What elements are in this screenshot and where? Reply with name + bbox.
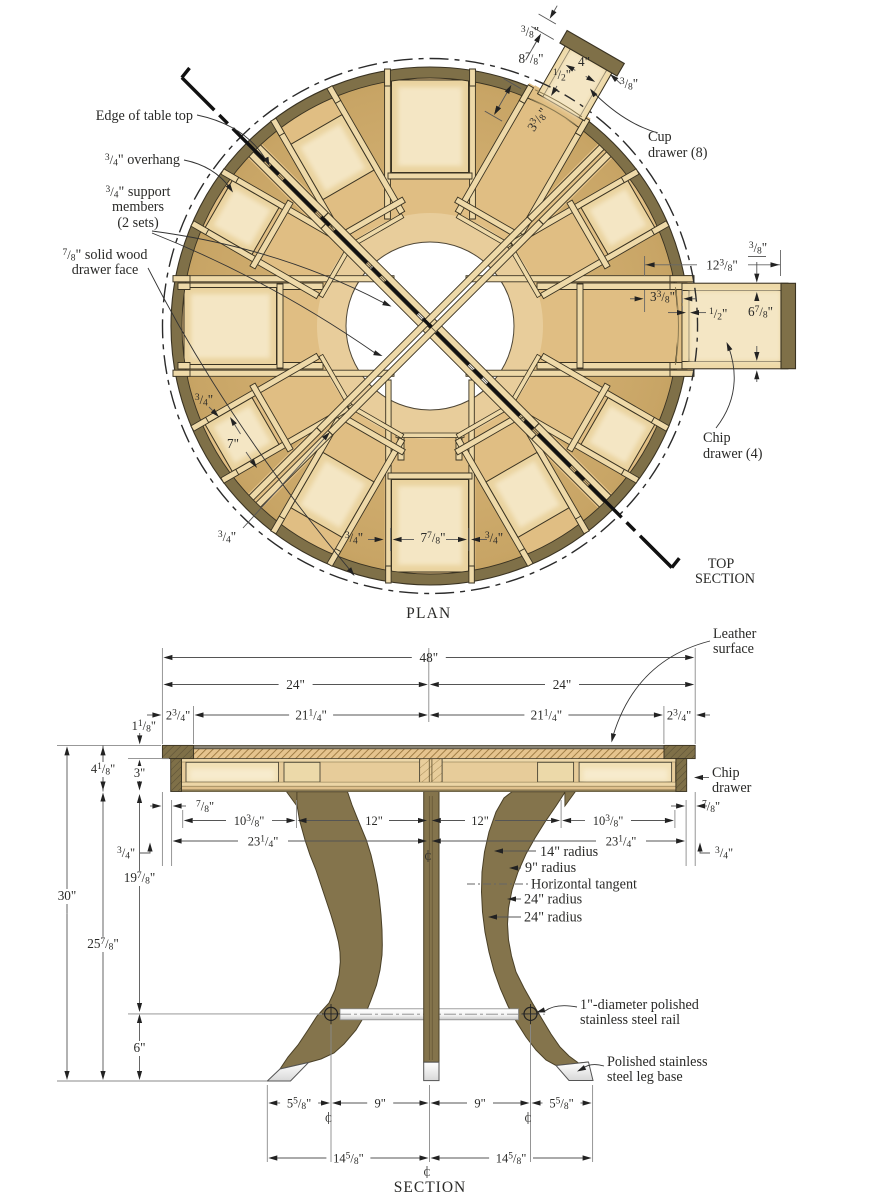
svg-text:48": 48" [420,650,439,665]
svg-text:Leather: Leather [713,626,757,642]
svg-text:9" radius: 9" radius [525,860,577,876]
svg-text:30": 30" [58,888,77,903]
svg-text:41/8": 41/8" [91,762,115,778]
svg-text:surface: surface [713,641,754,657]
svg-text:24": 24" [286,677,305,692]
svg-text:drawer face: drawer face [72,262,139,278]
svg-text:24" radius: 24" radius [524,892,583,908]
svg-text:55/8": 55/8" [287,1096,311,1112]
svg-text:drawer (4): drawer (4) [703,446,763,462]
svg-text:23/4": 23/4" [166,708,190,724]
svg-text:stainless steel rail: stainless steel rail [580,1012,680,1028]
svg-text:SECTION: SECTION [394,1179,466,1196]
svg-text:11/8": 11/8" [132,719,156,735]
svg-text:24" radius: 24" radius [524,910,583,926]
svg-text:Polished stainless: Polished stainless [607,1054,708,1070]
svg-text:77/8": 77/8" [421,530,446,547]
svg-text:3": 3" [134,766,145,780]
svg-text:9": 9" [474,1097,485,1111]
svg-text:6": 6" [134,1040,146,1055]
svg-text:12": 12" [365,814,383,828]
svg-text:7": 7" [227,436,239,451]
svg-text:drawer (8): drawer (8) [648,145,708,161]
svg-text:23/4": 23/4" [667,708,691,724]
svg-text:12": 12" [471,814,489,828]
svg-text:67/8": 67/8" [748,304,773,321]
svg-text:members: members [112,199,164,215]
svg-text:9": 9" [375,1097,386,1111]
svg-text:24": 24" [553,677,572,692]
svg-text:55/8": 55/8" [549,1096,573,1112]
svg-text:TOP: TOP [708,556,735,572]
svg-text:steel leg base: steel leg base [607,1069,683,1085]
svg-text:SECTION: SECTION [695,571,755,587]
svg-text:Chip: Chip [712,765,740,781]
svg-text:1"-diameter polished: 1"-diameter polished [580,997,699,1013]
svg-text:Horizontal tangent: Horizontal tangent [531,877,637,893]
svg-text:33/8": 33/8" [650,289,675,306]
svg-text:4": 4" [578,54,590,69]
svg-text:14" radius: 14" radius [540,844,599,860]
svg-text:Edge of table top: Edge of table top [96,108,193,124]
svg-text:PLAN: PLAN [406,605,451,622]
svg-text:Chip: Chip [703,430,731,446]
svg-text:87/8": 87/8" [519,51,544,68]
svg-text:(2 sets): (2 sets) [117,215,159,231]
svg-text:drawer: drawer [712,780,752,796]
